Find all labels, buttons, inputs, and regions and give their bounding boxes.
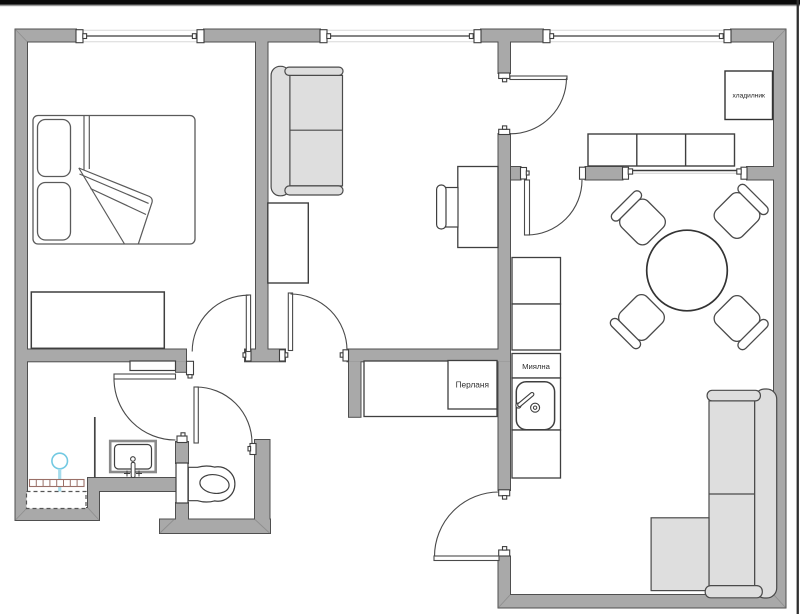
svg-text:хладилник: хладилник [732, 93, 765, 100]
svg-text:Перланя: Перланя [456, 380, 489, 390]
svg-text:Миялна: Миялна [522, 362, 551, 371]
